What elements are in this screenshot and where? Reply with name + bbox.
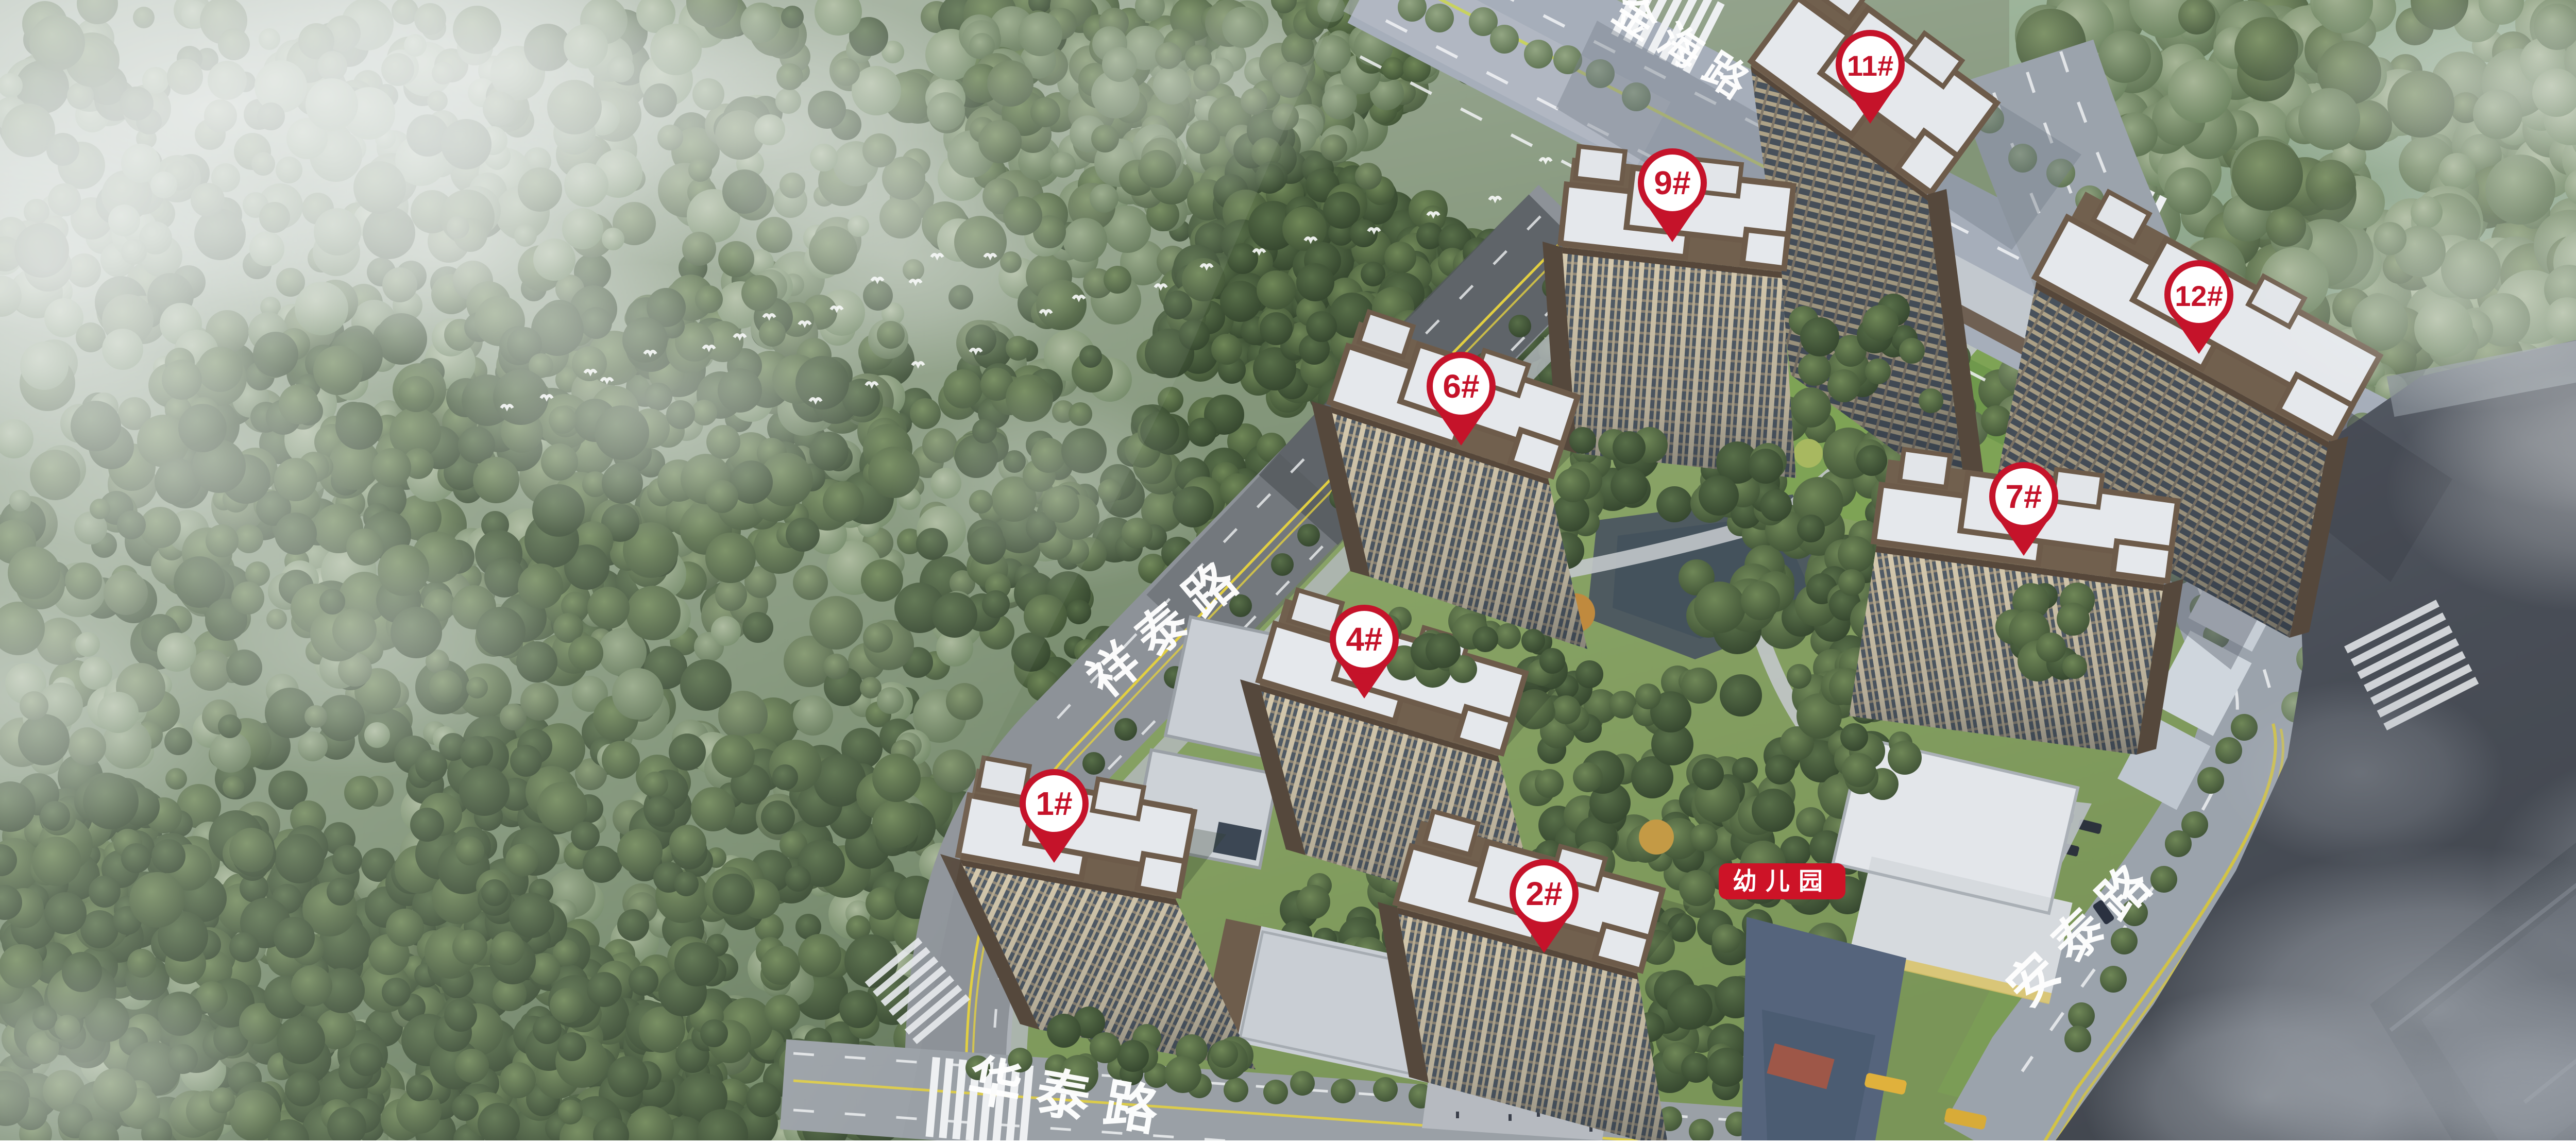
svg-text:4#: 4# — [1346, 621, 1382, 658]
svg-text:1#: 1# — [1036, 785, 1072, 822]
svg-text:2#: 2# — [1526, 875, 1562, 912]
svg-text:7#: 7# — [2005, 478, 2042, 515]
svg-text:6#: 6# — [1443, 368, 1479, 405]
svg-text:9#: 9# — [1654, 164, 1690, 201]
svg-text:12#: 12# — [2175, 280, 2223, 312]
svg-text:11#: 11# — [1847, 49, 1893, 82]
svg-text:幼儿园: 幼儿园 — [1733, 867, 1832, 895]
